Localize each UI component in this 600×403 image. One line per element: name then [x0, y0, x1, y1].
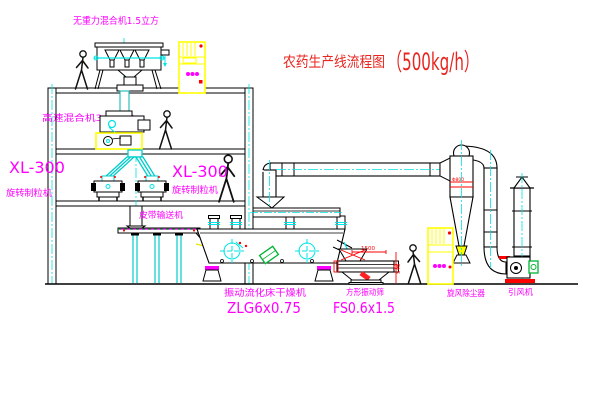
label-fan: 引风机: [508, 287, 533, 298]
fan-motor: [529, 261, 538, 273]
label-sieve-model: FS0.6x1.5: [333, 299, 395, 317]
label-granulator-right-name: 旋转制粒机: [172, 184, 218, 196]
cabinet1-buttons: [186, 72, 199, 76]
label-cyclone-diameter: Φ800: [452, 177, 464, 183]
diagram-title: 农药生产线流程图: [283, 54, 385, 71]
label-belt-conveyor: 皮带输送机: [139, 210, 184, 221]
fan-base: [505, 279, 535, 283]
control-cabinet-1: [179, 42, 205, 93]
diagram-title-capacity: （500kg/h）: [387, 48, 479, 76]
cad-flow-diagram: 高速混合机3.5立方: [0, 0, 600, 403]
control-cabinet-2: [428, 228, 453, 284]
label-granulator-left-name: 旋转制粒机: [6, 187, 52, 199]
label-sieve-height-dim: 545: [396, 263, 402, 274]
label-cyclone: 旋风除尘器: [447, 288, 485, 299]
label-dryer-model: ZLG6x0.75: [227, 299, 301, 317]
cabinet2-indicator-light: [448, 231, 451, 234]
label-granulator-left-model: XL-300: [9, 158, 65, 177]
cabinet1-indicator-light: [199, 44, 202, 47]
label-granulator-right-model: XL-300: [172, 162, 228, 181]
label-gravity-free-mixer: 无重力混合机1.5立方: [73, 15, 159, 27]
label-dryer-name: 振动流化床干燥机: [224, 287, 307, 299]
high-speed-mixer-drawing: [96, 111, 150, 149]
label-sieve-length-dim: 1500: [361, 246, 375, 252]
label-sieve-name: 方形振动筛: [346, 287, 384, 298]
cabinet2-buttons: [433, 264, 446, 268]
